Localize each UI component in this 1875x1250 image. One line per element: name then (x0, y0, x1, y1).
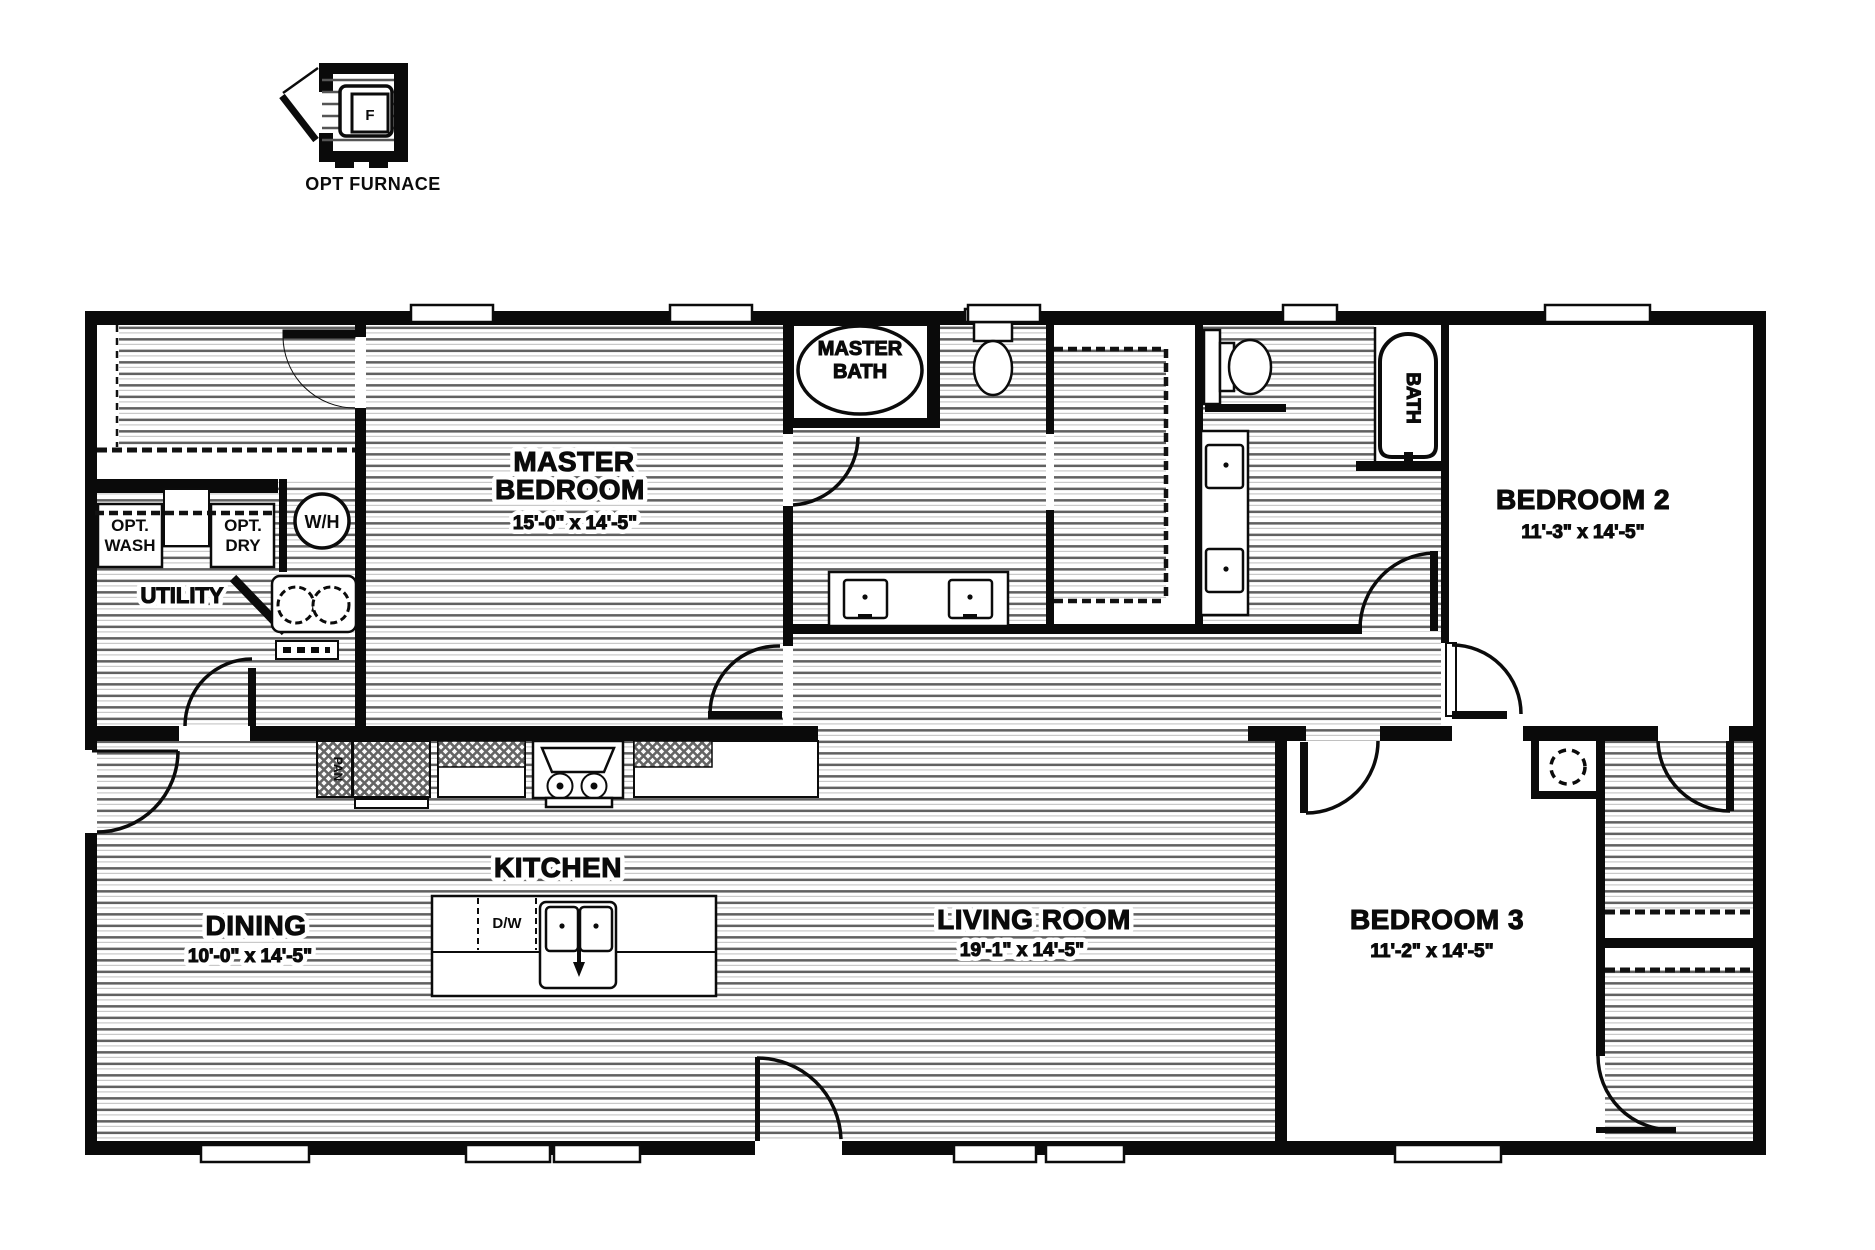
svg-text:UTILITY: UTILITY (140, 583, 223, 608)
svg-text:BEDROOM 2: BEDROOM 2 (1496, 484, 1670, 515)
svg-text:DINING: DINING (206, 910, 307, 941)
svg-text:19'-1" x 14'-5": 19'-1" x 14'-5" (960, 940, 1084, 961)
svg-text:LIVING ROOM: LIVING ROOM (937, 904, 1131, 935)
svg-text:BEDROOM 3: BEDROOM 3 (1350, 904, 1524, 935)
svg-text:W/H: W/H (305, 512, 340, 532)
svg-text:BEDROOM: BEDROOM (495, 474, 645, 505)
svg-text:F: F (365, 107, 374, 124)
svg-text:10'-0" x 14'-5": 10'-0" x 14'-5" (188, 946, 312, 967)
svg-text:PAN: PAN (331, 757, 345, 781)
svg-text:OPT FURNACE: OPT FURNACE (305, 174, 441, 194)
svg-text:OPT.: OPT. (224, 516, 262, 535)
svg-text:WASH: WASH (105, 536, 156, 555)
svg-text:OPT.: OPT. (111, 516, 149, 535)
svg-text:BATH: BATH (833, 361, 887, 383)
svg-text:11'-3" x 14'-5": 11'-3" x 14'-5" (1521, 522, 1644, 543)
svg-text:MASTER: MASTER (818, 338, 903, 360)
svg-text:D/W: D/W (492, 915, 522, 932)
svg-text:DRY: DRY (225, 536, 261, 555)
svg-text:KITCHEN: KITCHEN (494, 852, 622, 883)
svg-text:15'-0" x 14'-5": 15'-0" x 14'-5" (513, 513, 637, 534)
svg-text:BATH: BATH (1402, 372, 1423, 423)
svg-text:MASTER: MASTER (513, 446, 634, 477)
svg-text:11'-2" x 14'-5": 11'-2" x 14'-5" (1370, 941, 1493, 962)
